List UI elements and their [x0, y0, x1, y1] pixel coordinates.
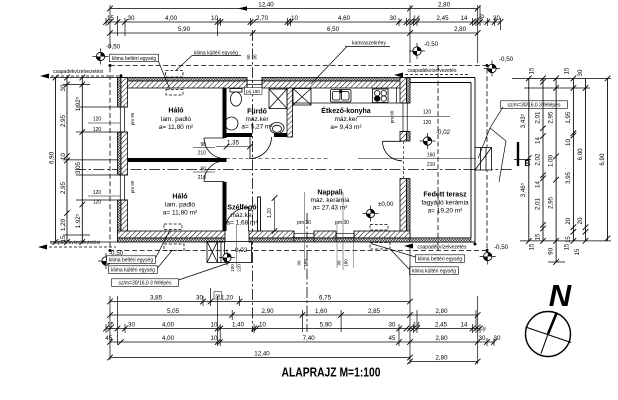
svg-text:a= 11,80 m²: a= 11,80 m²	[159, 124, 194, 131]
svg-text:10: 10	[291, 15, 298, 22]
svg-text:ALAPRAJZ M=1:100: ALAPRAJZ M=1:100	[282, 366, 381, 380]
svg-text:a= 9,43 m²: a= 9,43 m²	[330, 124, 362, 131]
svg-text:klima kültéri egység: klima kültéri egység	[412, 269, 456, 275]
svg-text:90: 90	[246, 54, 251, 60]
svg-text:90: 90	[253, 54, 258, 60]
svg-text:90: 90	[200, 142, 206, 148]
svg-text:30: 30	[479, 335, 486, 342]
svg-text:100: 100	[230, 264, 235, 272]
svg-text:30: 30	[215, 294, 221, 299]
svg-text:15: 15	[565, 236, 572, 243]
svg-text:máz.ker: máz.ker	[334, 116, 358, 123]
svg-text:30: 30	[196, 294, 203, 301]
svg-text:2,80: 2,80	[435, 308, 448, 315]
svg-text:180: 180	[344, 259, 349, 267]
svg-text:3,05: 3,05	[75, 161, 82, 174]
svg-text:15: 15	[528, 67, 535, 74]
svg-text:máz.ker: máz.ker	[230, 212, 254, 219]
svg-text:2,01: 2,01	[534, 197, 541, 210]
svg-text:10: 10	[211, 321, 218, 328]
svg-text:-0,50: -0,50	[494, 244, 509, 251]
svg-text:90: 90	[297, 260, 302, 266]
svg-text:5,90: 5,90	[320, 321, 333, 328]
svg-text:4,60: 4,60	[338, 15, 351, 22]
svg-text:-0,50: -0,50	[106, 44, 121, 51]
svg-text:6,90: 6,90	[599, 153, 606, 166]
svg-text:pm 90: pm 90	[130, 112, 135, 125]
svg-text:20: 20	[565, 217, 572, 224]
svg-text:30: 30	[390, 15, 397, 22]
svg-text:30: 30	[493, 15, 500, 22]
svg-text:6,75: 6,75	[319, 294, 332, 301]
svg-text:Fedett terasz: Fedett terasz	[423, 192, 467, 199]
svg-text:20: 20	[577, 217, 584, 224]
svg-text:1,60: 1,60	[315, 308, 328, 315]
svg-text:klima kültéri egység: klima kültéri egység	[111, 268, 155, 274]
svg-text:210: 210	[198, 151, 207, 157]
svg-text:2,80: 2,80	[454, 26, 467, 33]
svg-text:120: 120	[93, 200, 102, 206]
svg-text:2,02: 2,02	[534, 153, 541, 166]
svg-text:2,80: 2,80	[435, 354, 448, 361]
svg-text:Háló: Háló	[168, 108, 183, 115]
svg-text:30: 30	[577, 69, 584, 76]
svg-text:2,80: 2,80	[438, 1, 451, 8]
svg-text:N: N	[549, 278, 572, 313]
svg-text:15: 15	[563, 243, 570, 250]
svg-text:15: 15	[107, 15, 114, 22]
svg-text:5,05: 5,05	[167, 308, 180, 315]
svg-text:2,90: 2,90	[261, 308, 274, 315]
svg-text:Fürdő: Fürdő	[247, 109, 267, 116]
svg-text:pm 90: pm 90	[390, 110, 395, 123]
svg-text:3,43⁵: 3,43⁵	[520, 113, 527, 128]
svg-text:-0,50: -0,50	[499, 56, 514, 63]
svg-text:Étkező-konyha: Étkező-konyha	[321, 106, 371, 115]
svg-text:10: 10	[565, 139, 572, 146]
svg-text:30: 30	[60, 84, 67, 91]
svg-text:klima beltéri egység: klima beltéri egység	[109, 258, 153, 264]
svg-text:sz/m=30/16,0 3 fellépés: sz/m=30/16,0 3 fellépés	[119, 281, 172, 287]
svg-text:1,20: 1,20	[60, 218, 67, 231]
svg-text:klima beltéri egység: klima beltéri egység	[418, 257, 462, 263]
svg-text:210: 210	[237, 264, 242, 272]
svg-text:klima beltéri egység: klima beltéri egység	[112, 56, 156, 62]
svg-text:3,95: 3,95	[565, 171, 572, 184]
svg-text:120: 120	[93, 190, 102, 196]
svg-text:10: 10	[60, 153, 67, 160]
svg-text:4,00: 4,00	[162, 321, 175, 328]
svg-text:2,80: 2,80	[435, 335, 448, 342]
svg-text:160: 160	[427, 153, 436, 159]
svg-text:45: 45	[105, 335, 112, 342]
svg-text:2,95: 2,95	[548, 196, 555, 209]
svg-text:-0,02: -0,02	[436, 129, 451, 136]
svg-text:6,50: 6,50	[327, 26, 340, 33]
svg-text:máz.ker: máz.ker	[245, 116, 269, 123]
svg-text:210: 210	[198, 175, 207, 181]
svg-text:210: 210	[427, 162, 436, 168]
svg-text:5,90: 5,90	[178, 26, 191, 33]
svg-text:2,70: 2,70	[256, 15, 269, 22]
svg-text:30: 30	[494, 335, 501, 342]
svg-text:lam. padló: lam. padló	[161, 116, 191, 123]
svg-text:pm 90: pm 90	[130, 180, 135, 193]
svg-text:45: 45	[389, 335, 396, 342]
svg-text:12,40: 12,40	[258, 1, 274, 8]
svg-text:14: 14	[461, 15, 468, 22]
svg-text:90: 90	[548, 247, 555, 254]
svg-text:prj 180: prj 180	[246, 89, 260, 94]
svg-text:14: 14	[461, 321, 468, 328]
svg-text:-0,02: -0,02	[233, 247, 248, 254]
svg-text:1,20: 1,20	[221, 294, 234, 301]
svg-text:15: 15	[60, 235, 67, 242]
svg-text:15: 15	[574, 248, 581, 255]
svg-text:120: 120	[93, 117, 102, 123]
svg-text:6,00: 6,00	[577, 148, 584, 161]
svg-text:1,92⁵: 1,92⁵	[75, 96, 82, 111]
svg-text:1,95: 1,95	[565, 111, 572, 124]
svg-text:Háló: Háló	[172, 194, 187, 201]
svg-text:2,45: 2,45	[435, 321, 448, 328]
svg-text:±0,00: ±0,00	[378, 201, 394, 208]
svg-text:10: 10	[211, 335, 218, 342]
svg-text:Nappali: Nappali	[317, 190, 342, 197]
svg-text:3,85: 3,85	[150, 294, 163, 301]
svg-text:3,46⁵: 3,46⁵	[520, 182, 527, 197]
svg-text:120: 120	[423, 110, 432, 116]
svg-text:180: 180	[304, 259, 309, 267]
svg-text:2,95: 2,95	[548, 111, 555, 124]
svg-text:90: 90	[200, 167, 206, 173]
svg-text:90: 90	[337, 260, 342, 266]
svg-text:máz. kerámia: máz. kerámia	[310, 197, 349, 204]
svg-text:a= 5,27 m²: a= 5,27 m²	[241, 124, 273, 131]
svg-text:14: 14	[534, 181, 541, 188]
svg-text:1,00: 1,00	[548, 154, 555, 167]
svg-text:30: 30	[128, 15, 135, 22]
svg-text:csapadékvízelvezetés: csapadékvízelvezetés	[418, 245, 467, 251]
svg-text:120: 120	[423, 120, 432, 126]
svg-text:30: 30	[389, 321, 396, 328]
svg-text:15: 15	[528, 243, 535, 250]
svg-text:7,40: 7,40	[303, 335, 316, 342]
svg-text:4,00: 4,00	[162, 335, 175, 342]
svg-text:15: 15	[107, 321, 114, 328]
svg-text:10: 10	[259, 321, 266, 328]
svg-text:2,45: 2,45	[436, 15, 449, 22]
svg-text:a= 1,68 m²: a= 1,68 m²	[226, 220, 258, 227]
svg-text:kamraszekrény: kamraszekrény	[352, 41, 386, 47]
svg-text:15: 15	[534, 233, 541, 240]
svg-text:30: 30	[128, 321, 135, 328]
svg-text:4,00: 4,00	[165, 15, 178, 22]
svg-text:csapadékvízelvezetési: csapadékvízelvezetési	[50, 240, 100, 246]
svg-text:Szélfogó: Szélfogó	[227, 205, 256, 212]
svg-text:a= 19,20 m²: a= 19,20 m²	[428, 208, 464, 215]
svg-text:1,92⁵: 1,92⁵	[75, 213, 82, 228]
svg-text:-0,50: -0,50	[424, 41, 439, 48]
svg-text:6,90: 6,90	[48, 151, 55, 164]
svg-text:sz/m=30/16,0 3 fellépés: sz/m=30/16,0 3 fellépés	[508, 103, 561, 109]
svg-text:2,85: 2,85	[368, 308, 381, 315]
svg-text:12,40: 12,40	[254, 350, 270, 357]
svg-text:2,01: 2,01	[534, 111, 541, 124]
svg-text:a= 11,80 m²: a= 11,80 m²	[163, 210, 198, 217]
svg-text:1,35: 1,35	[227, 140, 240, 147]
svg-text:14: 14	[534, 137, 541, 144]
svg-text:2,95: 2,95	[60, 114, 67, 127]
svg-text:15: 15	[563, 67, 570, 74]
svg-text:1,40: 1,40	[232, 321, 245, 328]
svg-text:csapadékvízelvezetési: csapadékvízelvezetési	[53, 69, 103, 75]
svg-text:csapadékvízelvezetés: csapadékvízelvezetés	[408, 68, 457, 74]
svg-text:lam. padló: lam. padló	[165, 202, 195, 209]
svg-text:1,20: 1,20	[267, 208, 273, 218]
svg-text:fagyálló kerámia: fagyálló kerámia	[421, 200, 469, 207]
svg-text:2,95: 2,95	[60, 181, 67, 194]
